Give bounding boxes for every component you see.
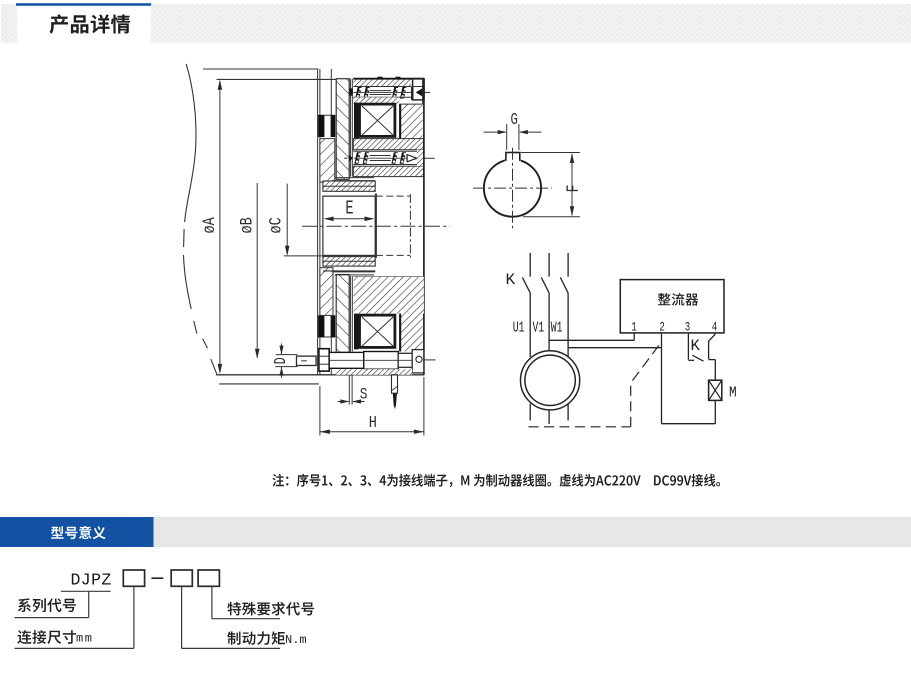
svg-text:M: M bbox=[729, 384, 737, 401]
svg-text:E: E bbox=[345, 198, 353, 220]
svg-text:N.m: N.m bbox=[285, 633, 307, 647]
svg-text:øB: øB bbox=[237, 217, 257, 233]
svg-text:W1: W1 bbox=[551, 319, 563, 337]
svg-text:K: K bbox=[691, 337, 701, 355]
svg-text:V1: V1 bbox=[533, 319, 545, 337]
svg-text:mm: mm bbox=[76, 632, 94, 646]
svg-text:H: H bbox=[369, 413, 377, 433]
svg-text:S: S bbox=[360, 386, 368, 404]
svg-text:1: 1 bbox=[631, 321, 637, 335]
svg-text:DJPZ: DJPZ bbox=[71, 571, 112, 590]
svg-text:øA: øA bbox=[199, 217, 219, 234]
svg-text:F: F bbox=[563, 185, 583, 193]
svg-text:U1: U1 bbox=[513, 319, 525, 337]
svg-text:G: G bbox=[511, 111, 518, 129]
svg-text:K: K bbox=[506, 271, 516, 289]
svg-text:øC: øC bbox=[266, 217, 286, 233]
svg-text:D: D bbox=[272, 357, 291, 364]
svg-text:3: 3 bbox=[685, 321, 691, 335]
